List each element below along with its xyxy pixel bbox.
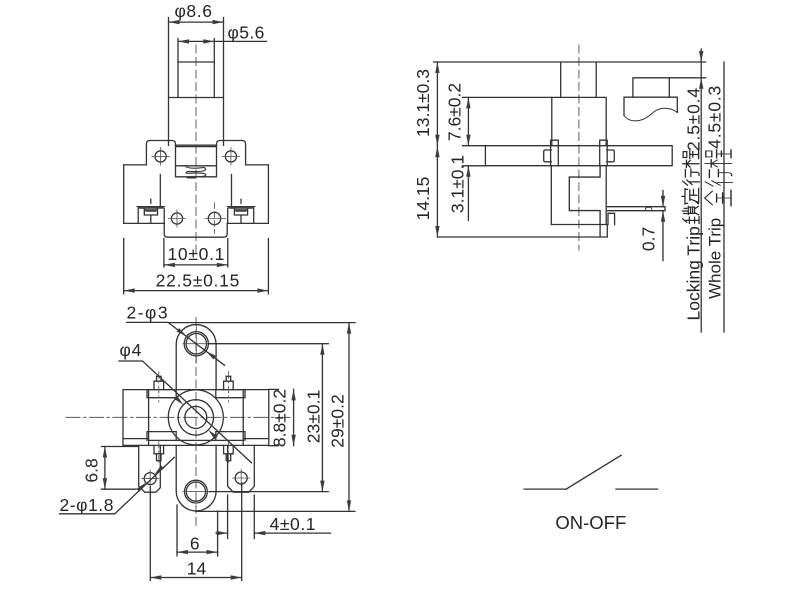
svg-text:2-φ1.8: 2-φ1.8 — [60, 495, 115, 515]
svg-text:6.8: 6.8 — [81, 458, 101, 482]
svg-text:φ4: φ4 — [120, 340, 143, 360]
svg-text:2-φ3: 2-φ3 — [127, 303, 170, 323]
svg-text:φ8.6: φ8.6 — [174, 1, 212, 21]
svg-text:Whole Trip: Whole Trip — [706, 218, 725, 299]
svg-text:23±0.1: 23±0.1 — [303, 390, 323, 443]
svg-text:8.8±0.2: 8.8±0.2 — [269, 389, 289, 447]
svg-text:2.5±0.4: 2.5±0.4 — [684, 87, 704, 151]
svg-text:10±0.1: 10±0.1 — [167, 244, 225, 264]
svg-text:3.1±0.1: 3.1±0.1 — [447, 155, 467, 213]
svg-text:4±0.1: 4±0.1 — [270, 514, 316, 534]
svg-text:ON-OFF: ON-OFF — [555, 512, 626, 533]
svg-text:φ5.6: φ5.6 — [228, 23, 265, 43]
svg-text:14.15: 14.15 — [413, 177, 433, 221]
svg-text:4.5±0.3: 4.5±0.3 — [705, 85, 725, 149]
svg-text:29±0.2: 29±0.2 — [327, 394, 347, 447]
svg-text:0.7: 0.7 — [638, 227, 658, 251]
svg-text:14: 14 — [187, 558, 207, 578]
svg-text:6: 6 — [190, 533, 200, 553]
svg-text:Locking Trip: Locking Trip — [684, 226, 704, 320]
svg-text:7.6±0.2: 7.6±0.2 — [445, 83, 465, 141]
svg-text:13.1±0.3: 13.1±0.3 — [413, 69, 433, 137]
svg-text:22.5±0.15: 22.5±0.15 — [156, 271, 240, 291]
